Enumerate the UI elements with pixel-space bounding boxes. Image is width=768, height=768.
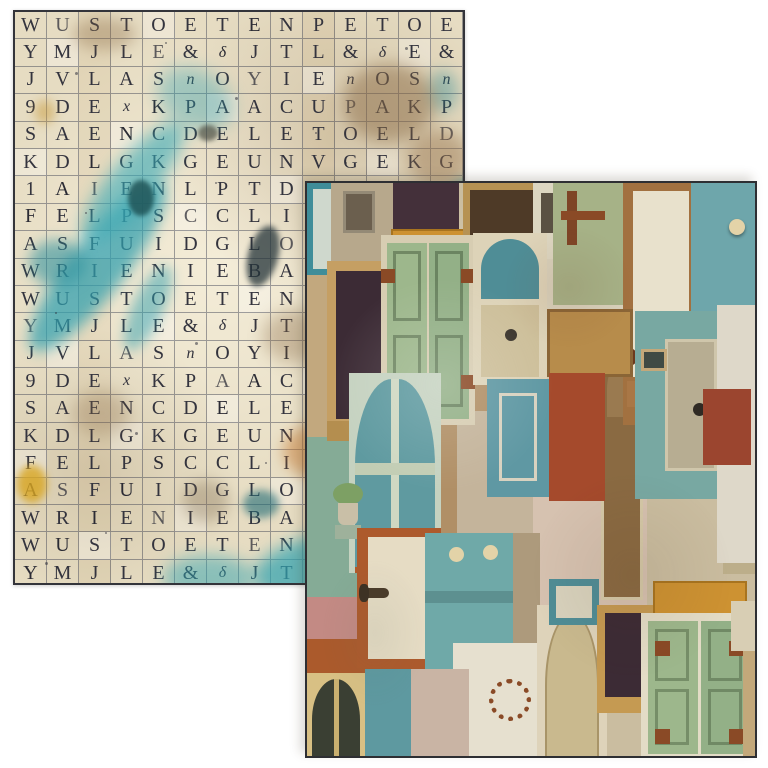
letter-cell: L <box>239 478 271 505</box>
weathering-overlay <box>307 183 757 758</box>
letter-cell: Y <box>15 313 47 340</box>
letter-cell: L <box>79 423 111 450</box>
letter-cell: K <box>143 368 175 395</box>
letter-cell: E <box>143 560 175 585</box>
letter-cell: x <box>111 368 143 395</box>
letter-cell: T <box>111 532 143 559</box>
letter-cell: C <box>143 395 175 422</box>
letter-cell: A <box>367 94 399 121</box>
doors-collage-paper-sheet <box>305 181 757 758</box>
letter-cell: O <box>367 67 399 94</box>
letter-cell: V <box>303 149 335 176</box>
letter-cell: A <box>47 122 79 149</box>
letter-cell: L <box>79 204 111 231</box>
letter-cell: W <box>15 286 47 313</box>
letter-cell: E <box>431 12 463 39</box>
letter-cell: P <box>335 94 367 121</box>
letter-cell: O <box>207 67 239 94</box>
letter-cell: M <box>47 313 79 340</box>
letter-cell: A <box>47 395 79 422</box>
letter-cell: D <box>175 395 207 422</box>
letter-cell: V <box>47 341 79 368</box>
letter-cell: M <box>47 39 79 66</box>
letter-cell: T <box>271 39 303 66</box>
letter-cell: J <box>79 39 111 66</box>
letter-cell: N <box>271 149 303 176</box>
letter-cell: & <box>431 39 463 66</box>
letter-cell: B <box>239 259 271 286</box>
letter-cell: D <box>175 478 207 505</box>
letter-cell: E <box>79 122 111 149</box>
letter-cell: C <box>143 122 175 149</box>
letter-cell: I <box>175 259 207 286</box>
letter-cell: A <box>15 231 47 258</box>
letter-cell: G <box>207 478 239 505</box>
letter-cell: O <box>207 341 239 368</box>
letter-cell: W <box>15 12 47 39</box>
letter-cell: E <box>79 395 111 422</box>
letter-cell: U <box>47 532 79 559</box>
letter-cell: D <box>47 94 79 121</box>
letter-cell: P <box>303 12 335 39</box>
letter-cell: L <box>79 149 111 176</box>
letter-cell: P <box>431 94 463 121</box>
letter-cell: C <box>207 204 239 231</box>
letter-cell: E <box>207 423 239 450</box>
letter-cell: K <box>399 149 431 176</box>
letter-cell: N <box>143 176 175 203</box>
letter-cell: G <box>111 423 143 450</box>
letter-cell: I <box>143 478 175 505</box>
letter-cell: N <box>111 395 143 422</box>
product-photo: { "page": {"background": "#ffffff", "wid… <box>0 0 768 768</box>
letter-cell: L <box>79 67 111 94</box>
letter-cell: L <box>79 341 111 368</box>
letter-cell: L <box>111 560 143 585</box>
letter-cell: C <box>175 204 207 231</box>
letter-cell: 1 <box>15 176 47 203</box>
letter-cell: L <box>239 450 271 477</box>
letter-cell: δ <box>207 560 239 585</box>
letter-cell: A <box>111 341 143 368</box>
letter-cell: K <box>399 94 431 121</box>
letter-cell: U <box>239 149 271 176</box>
letter-cell: O <box>143 12 175 39</box>
letter-cell: G <box>175 149 207 176</box>
letter-cell: V <box>47 67 79 94</box>
letter-cell: T <box>239 176 271 203</box>
letter-cell: n <box>335 67 367 94</box>
letter-cell: E <box>207 395 239 422</box>
letter-cell: A <box>271 259 303 286</box>
letter-cell: D <box>431 122 463 149</box>
letter-cell: J <box>239 313 271 340</box>
letter-cell: U <box>239 423 271 450</box>
letter-cell: & <box>175 39 207 66</box>
letter-cell: R <box>47 259 79 286</box>
letter-cell: A <box>239 368 271 395</box>
letter-cell: Y <box>15 39 47 66</box>
letter-cell: W <box>15 532 47 559</box>
letter-cell: B <box>239 505 271 532</box>
letter-cell: O <box>143 286 175 313</box>
letter-cell: E <box>79 368 111 395</box>
letter-cell: D <box>175 231 207 258</box>
letter-cell: U <box>47 12 79 39</box>
letter-cell: M <box>47 560 79 585</box>
letter-cell: P <box>175 368 207 395</box>
letter-cell: N <box>271 286 303 313</box>
letter-cell: I <box>79 505 111 532</box>
letter-cell: S <box>47 478 79 505</box>
letter-cell: T <box>207 12 239 39</box>
letter-cell: U <box>111 478 143 505</box>
letter-cell: S <box>15 122 47 149</box>
letter-cell: E <box>271 122 303 149</box>
letter-cell: L <box>239 395 271 422</box>
letter-cell: J <box>239 39 271 66</box>
letter-cell: P <box>111 204 143 231</box>
letter-cell: A <box>15 478 47 505</box>
letter-cell: S <box>143 341 175 368</box>
letter-cell: U <box>303 94 335 121</box>
letter-cell: Y <box>239 341 271 368</box>
letter-cell: E <box>367 122 399 149</box>
letter-cell: D <box>47 423 79 450</box>
letter-cell: N <box>271 423 303 450</box>
letter-cell: n <box>175 341 207 368</box>
letter-cell: T <box>111 12 143 39</box>
letter-cell: F <box>79 231 111 258</box>
letter-cell: I <box>271 204 303 231</box>
letter-cell: E <box>47 204 79 231</box>
letter-cell: n <box>175 67 207 94</box>
letter-cell: D <box>47 149 79 176</box>
letter-cell: T <box>271 560 303 585</box>
letter-cell: L <box>111 39 143 66</box>
letter-cell: J <box>15 341 47 368</box>
letter-cell: S <box>79 532 111 559</box>
letter-cell: A <box>111 67 143 94</box>
letter-cell: E <box>239 532 271 559</box>
letter-cell: I <box>175 505 207 532</box>
letter-cell: O <box>335 122 367 149</box>
letter-cell: A <box>271 505 303 532</box>
letter-cell: J <box>79 313 111 340</box>
letter-cell: δ <box>367 39 399 66</box>
letter-cell: F <box>79 478 111 505</box>
letter-cell: A <box>47 176 79 203</box>
letter-cell: L <box>399 122 431 149</box>
letter-cell: G <box>207 231 239 258</box>
letter-cell: O <box>271 478 303 505</box>
letter-cell: F <box>15 450 47 477</box>
letter-cell: E <box>175 286 207 313</box>
letter-cell: D <box>175 122 207 149</box>
letter-cell: T <box>207 286 239 313</box>
letter-cell: I <box>271 450 303 477</box>
letter-cell: L <box>111 313 143 340</box>
letter-cell: P <box>207 176 239 203</box>
letter-cell: L <box>303 39 335 66</box>
letter-cell: T <box>367 12 399 39</box>
letter-cell: F <box>15 204 47 231</box>
letter-cell: C <box>271 94 303 121</box>
letter-cell: E <box>303 67 335 94</box>
letter-cell: Y <box>239 67 271 94</box>
letter-cell: E <box>143 39 175 66</box>
letter-cell: C <box>207 450 239 477</box>
letter-cell: 9 <box>15 94 47 121</box>
letter-cell: S <box>143 204 175 231</box>
letter-cell: S <box>79 286 111 313</box>
letter-cell: W <box>15 505 47 532</box>
letter-cell: & <box>335 39 367 66</box>
letter-cell: K <box>143 149 175 176</box>
letter-cell: E <box>79 94 111 121</box>
letter-cell: n <box>431 67 463 94</box>
letter-cell: J <box>79 560 111 585</box>
letter-cell: J <box>239 560 271 585</box>
letter-cell: E <box>207 505 239 532</box>
letter-cell: D <box>271 176 303 203</box>
letter-cell: R <box>47 505 79 532</box>
letter-cell: I <box>79 176 111 203</box>
letter-cell: G <box>431 149 463 176</box>
letter-cell: A <box>207 94 239 121</box>
letter-cell: K <box>143 423 175 450</box>
letter-cell: K <box>15 423 47 450</box>
letter-cell: δ <box>207 313 239 340</box>
letter-cell: I <box>271 67 303 94</box>
letter-cell: P <box>175 94 207 121</box>
letter-cell: L <box>239 122 271 149</box>
letter-cell: K <box>15 149 47 176</box>
letter-cell: E <box>239 12 271 39</box>
letter-cell: G <box>175 423 207 450</box>
letter-cell: G <box>335 149 367 176</box>
letter-cell: N <box>271 12 303 39</box>
letter-cell: T <box>207 532 239 559</box>
letter-cell: A <box>207 368 239 395</box>
letter-cell: C <box>271 368 303 395</box>
letter-cell: O <box>143 532 175 559</box>
letter-cell: J <box>15 67 47 94</box>
letter-cell: S <box>79 12 111 39</box>
letter-cell: E <box>175 532 207 559</box>
letter-cell: & <box>175 560 207 585</box>
letter-cell: L <box>239 231 271 258</box>
letter-cell: U <box>111 231 143 258</box>
letter-cell: L <box>239 204 271 231</box>
letter-cell: U <box>47 286 79 313</box>
letter-cell: T <box>303 122 335 149</box>
letter-cell: δ <box>207 39 239 66</box>
letter-cell: S <box>47 231 79 258</box>
letter-cell: S <box>143 67 175 94</box>
letter-cell: x <box>111 94 143 121</box>
letter-cell: L <box>175 176 207 203</box>
letter-cell: E <box>207 259 239 286</box>
letter-cell: T <box>111 286 143 313</box>
letter-cell: E <box>367 149 399 176</box>
letter-cell: N <box>111 122 143 149</box>
letter-cell: E <box>111 176 143 203</box>
letter-cell: L <box>79 450 111 477</box>
letter-cell: O <box>271 231 303 258</box>
letter-cell: E <box>335 12 367 39</box>
letter-cell: E <box>239 286 271 313</box>
letter-cell: N <box>143 505 175 532</box>
letter-cell: Y <box>15 560 47 585</box>
letter-cell: W <box>15 259 47 286</box>
letter-cell: S <box>143 450 175 477</box>
letter-cell: E <box>47 450 79 477</box>
letter-cell: G <box>111 149 143 176</box>
letter-cell: I <box>143 231 175 258</box>
letter-cell: E <box>143 313 175 340</box>
letter-cell: & <box>175 313 207 340</box>
letter-cell: C <box>175 450 207 477</box>
letter-cell: N <box>143 259 175 286</box>
letter-cell: T <box>271 313 303 340</box>
letter-cell: E <box>111 259 143 286</box>
letter-cell: I <box>271 341 303 368</box>
letter-cell: D <box>47 368 79 395</box>
letter-cell: E <box>207 122 239 149</box>
letter-cell: E <box>175 12 207 39</box>
letter-cell: E <box>111 505 143 532</box>
letter-cell: I <box>79 259 111 286</box>
letter-cell: N <box>271 532 303 559</box>
letter-cell: 9 <box>15 368 47 395</box>
letter-cell: P <box>111 450 143 477</box>
letter-cell: S <box>399 67 431 94</box>
letter-cell: E <box>399 39 431 66</box>
letter-cell: K <box>143 94 175 121</box>
letter-cell: E <box>207 149 239 176</box>
letter-cell: O <box>399 12 431 39</box>
letter-cell: E <box>271 395 303 422</box>
letter-cell: A <box>239 94 271 121</box>
letter-cell: S <box>15 395 47 422</box>
